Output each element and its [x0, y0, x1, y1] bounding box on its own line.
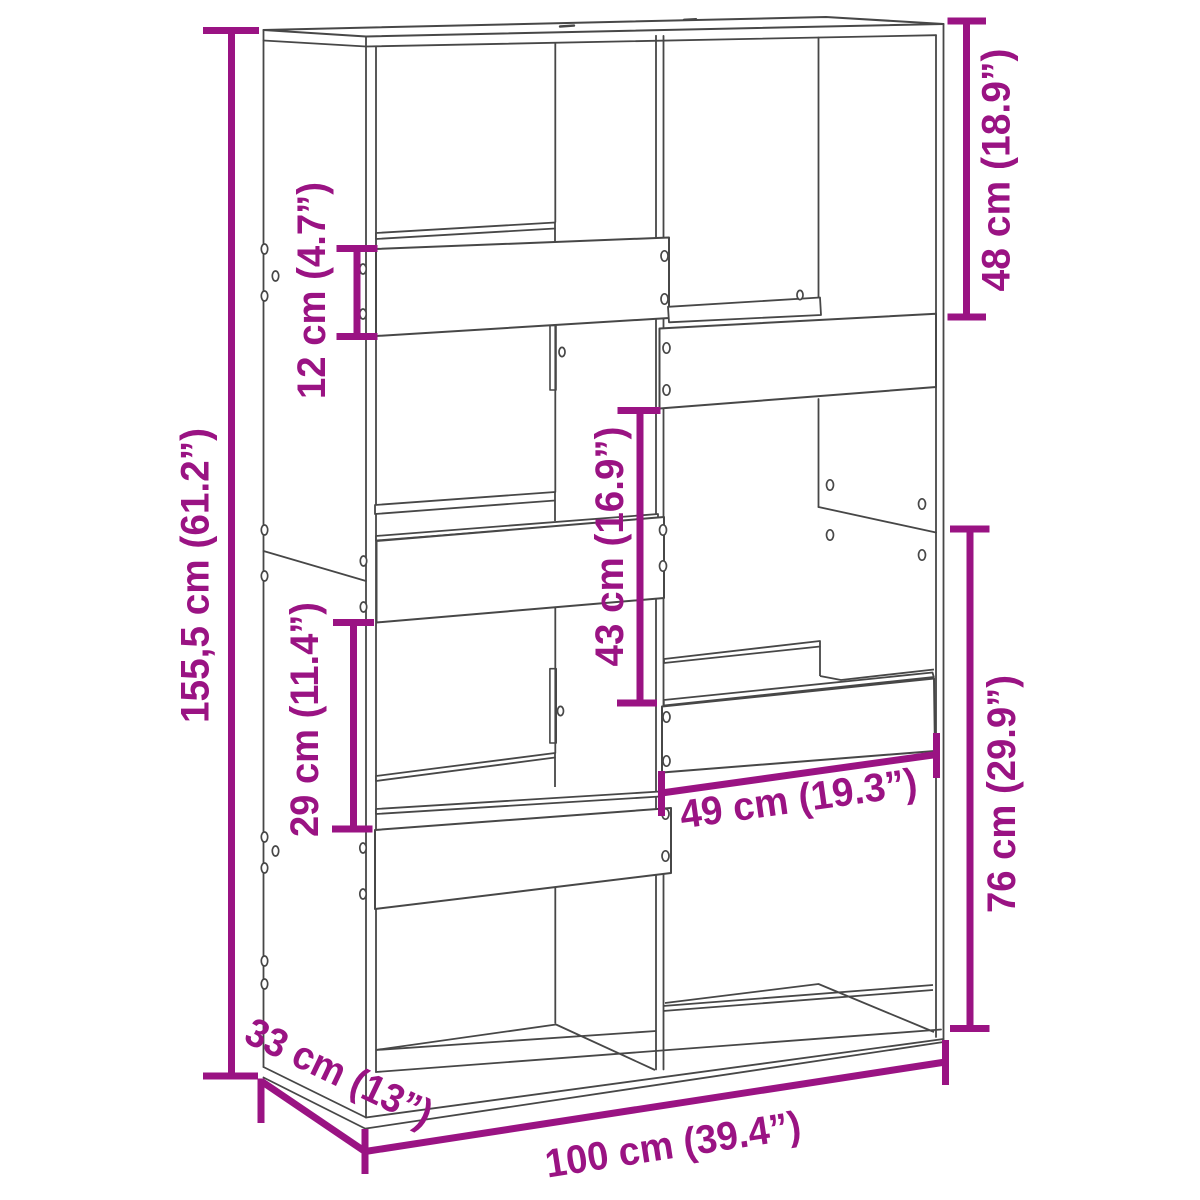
svg-text:12 cm (4.7”): 12 cm (4.7”) [290, 182, 334, 399]
svg-text:43 cm (16.9”): 43 cm (16.9”) [588, 427, 632, 667]
svg-text:76 cm (29.9”): 76 cm (29.9”) [980, 675, 1024, 913]
svg-text:155,5 cm (61.2”): 155,5 cm (61.2”) [174, 428, 218, 723]
svg-text:29 cm (11.4”): 29 cm (11.4”) [283, 602, 327, 837]
svg-text:48 cm (18.9”): 48 cm (18.9”) [975, 49, 1019, 292]
